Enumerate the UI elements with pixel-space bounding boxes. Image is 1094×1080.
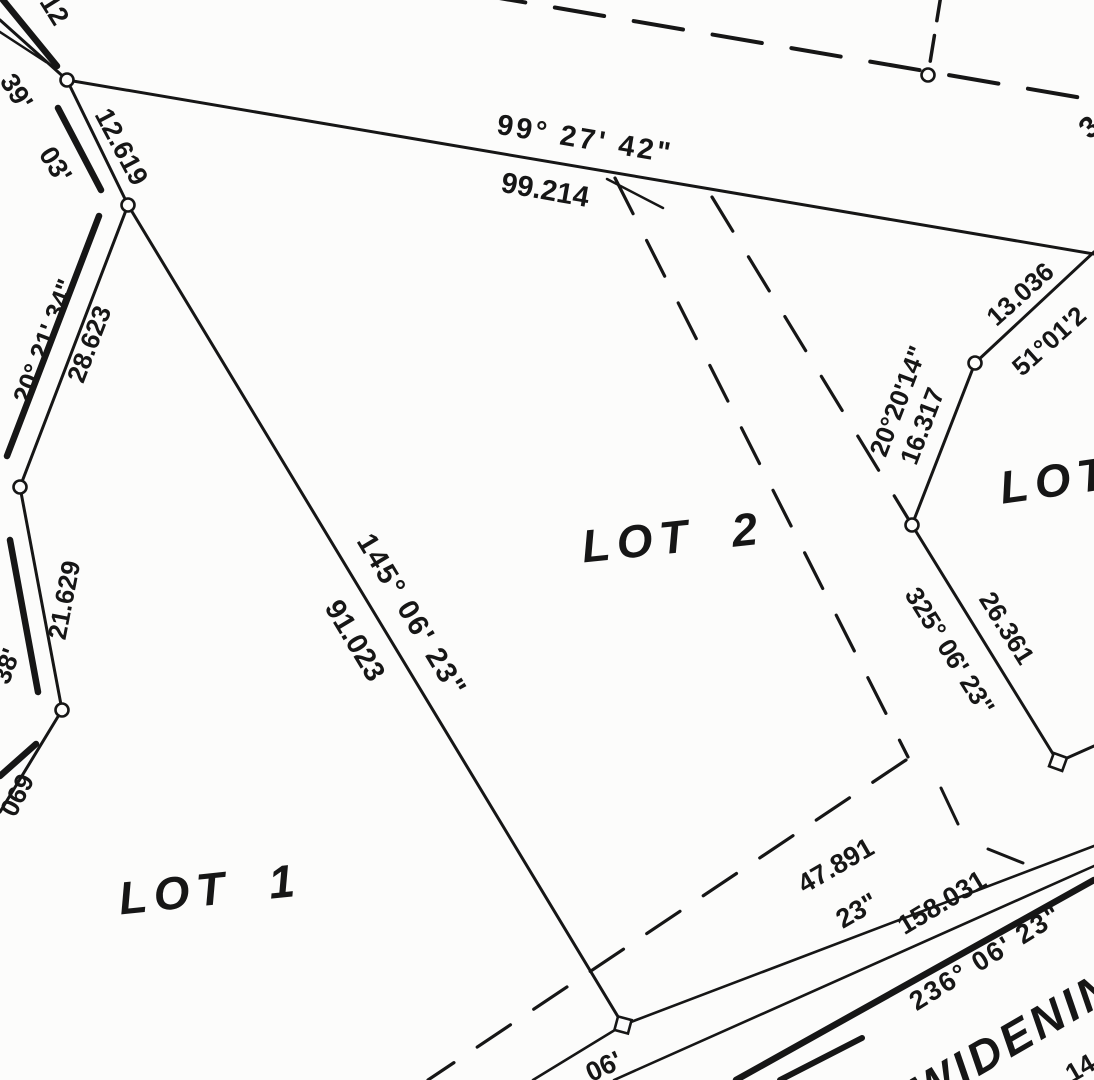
survey-point [969,357,982,370]
survey-point [122,199,135,212]
stray-dash-2 [988,849,1023,863]
widening-dashed-line [428,760,906,1080]
road-hatch-southeast-2 [780,1038,862,1080]
label-leader-line [607,179,663,208]
easement-dashed-west [615,178,908,757]
easement-dashed-east [712,197,912,525]
survey-point-square [1049,753,1067,771]
northwest-corner-extension [0,20,67,80]
north-dashed-tie [928,0,941,75]
survey-point [61,74,74,87]
survey-point [906,519,919,532]
survey-point [56,704,69,717]
stray-dash-1 [941,788,958,824]
survey-point [922,69,935,82]
north-dashed-line [476,0,1094,100]
survey-point [14,481,27,494]
north-boundary-line [67,80,1094,254]
west-boundary-chain [0,80,128,812]
survey-plat-page: 12 39' 03' 12.619 20° 21' 34" 28.623 21.… [0,0,1094,1080]
survey-point-square [614,1016,631,1033]
